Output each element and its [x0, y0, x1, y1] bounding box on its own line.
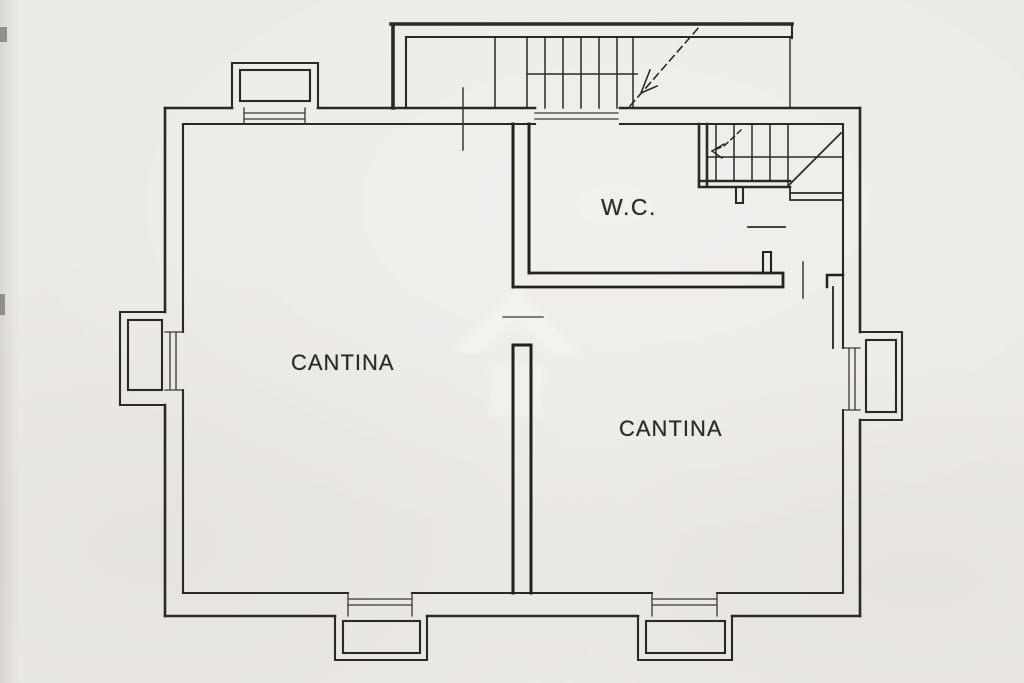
- wall-wc-stub: [763, 252, 771, 273]
- bay-left-inner: [128, 320, 162, 390]
- door-pier: [827, 275, 843, 287]
- stair-down-arrowhead: [712, 144, 724, 158]
- upper-staircase: [391, 24, 792, 108]
- stair-treads: [527, 37, 633, 108]
- stair-up-arrowhead: [641, 70, 657, 93]
- wall-wc-left: [513, 124, 529, 287]
- door-marks: [503, 262, 803, 317]
- bay-bottom-left-inner: [343, 621, 420, 653]
- bay-bottom-right-inner: [646, 621, 725, 653]
- wall-wc-bottom: [513, 273, 783, 287]
- winder-diagonal: [788, 133, 841, 186]
- light-well-bays: [120, 63, 902, 660]
- bay-right-inner: [866, 340, 896, 412]
- wall-stub: [736, 187, 743, 203]
- room-label-cantina-left: CANTINA: [291, 350, 395, 376]
- stair-treads: [716, 124, 788, 187]
- lower-staircase: [699, 124, 843, 227]
- interior-walls: [513, 124, 843, 593]
- bay-top-left-inner: [240, 70, 310, 101]
- room-label-wc: W.C.: [601, 194, 657, 221]
- floor-plan-scan: CANTINA CANTINA W.C.: [0, 0, 1024, 683]
- floor-plan-drawing: [0, 0, 1024, 683]
- room-label-cantina-right: CANTINA: [619, 416, 723, 442]
- watermark-logo: [454, 288, 578, 416]
